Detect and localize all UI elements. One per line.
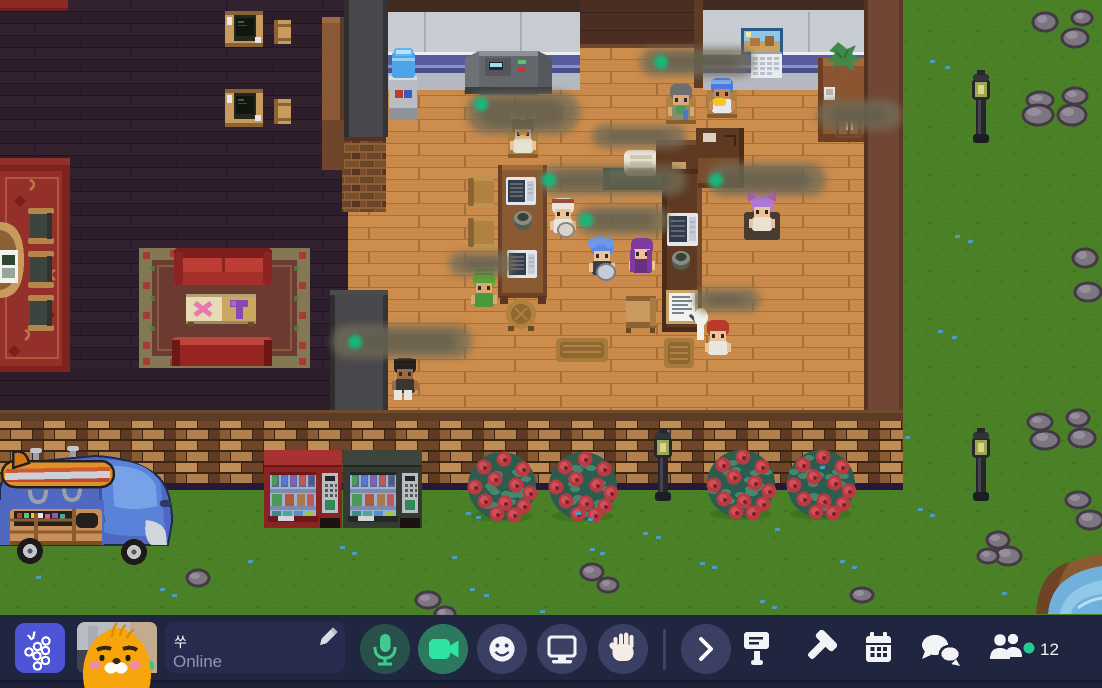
svg-text:Online: Online xyxy=(173,652,222,671)
svg-text:쑤: 쑤 xyxy=(174,634,187,650)
svg-text:12: 12 xyxy=(1040,640,1059,659)
